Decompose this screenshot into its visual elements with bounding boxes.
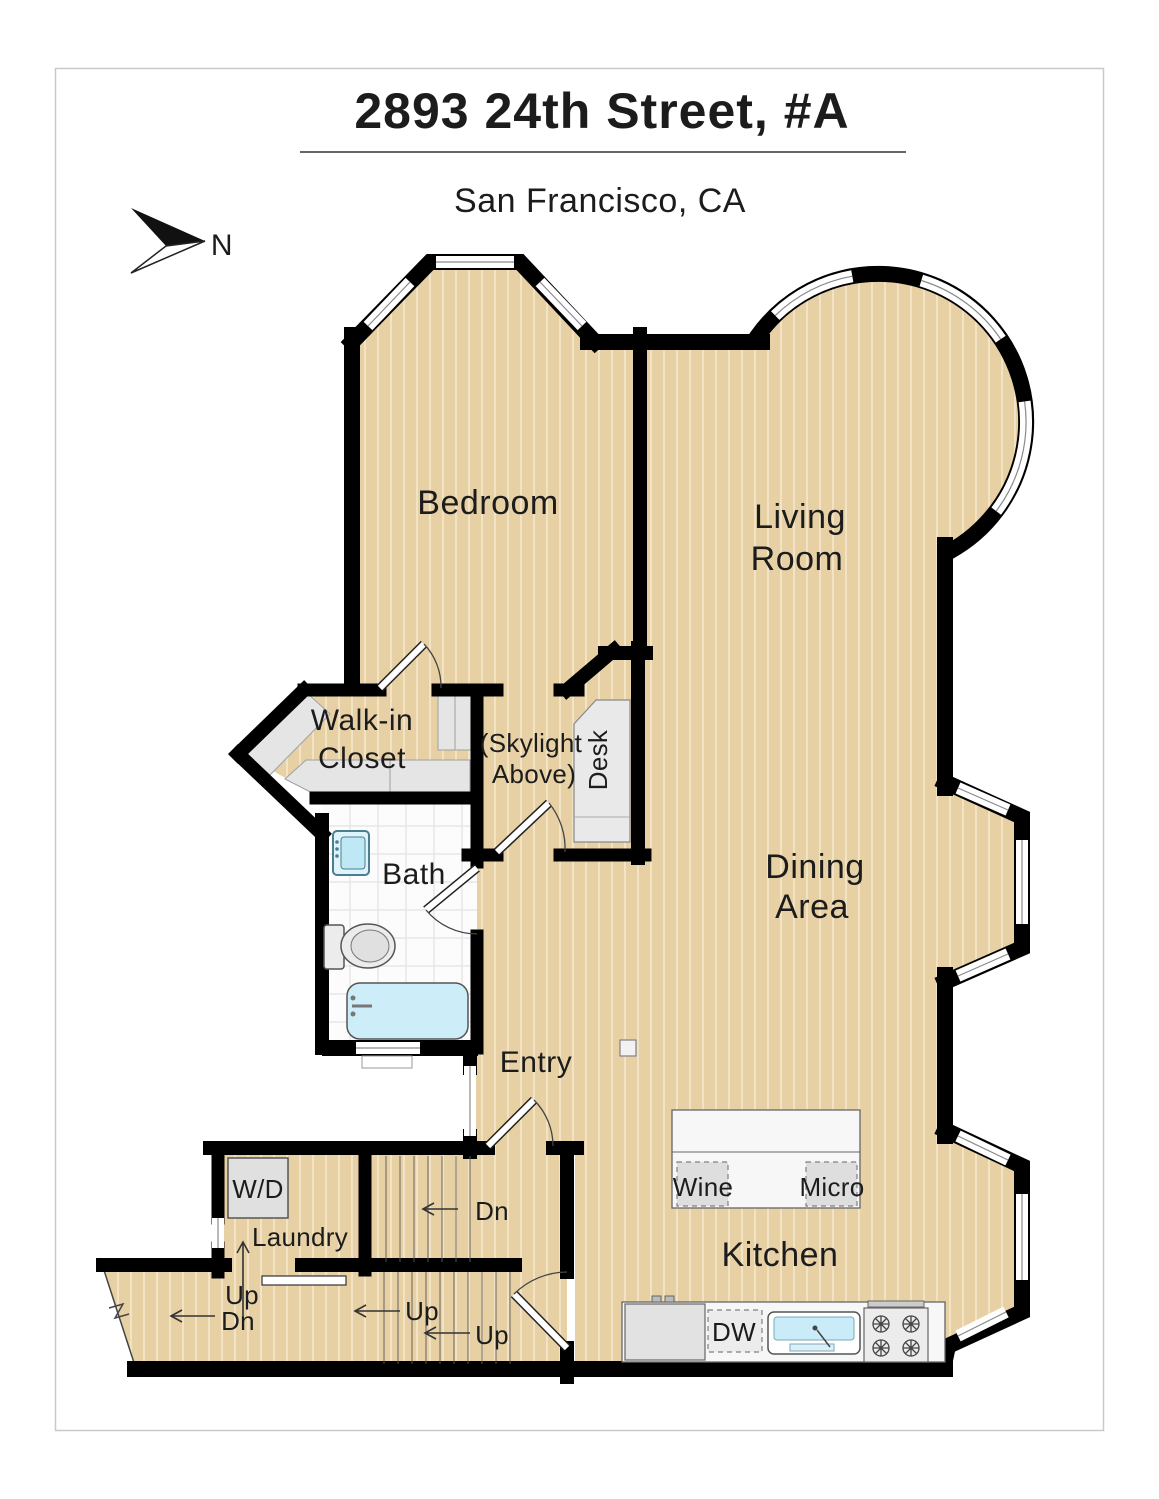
- page-title: 2893 24th Street, #A: [354, 83, 849, 139]
- micro-label: Micro: [799, 1172, 864, 1202]
- bedroom-floor: [352, 262, 646, 692]
- stair-handrail: [262, 1276, 346, 1285]
- skylight-label-2: Above): [492, 759, 576, 789]
- dining-area-label-2: Area: [775, 888, 849, 926]
- stove: [864, 1301, 928, 1362]
- living-dining-floor: [632, 342, 945, 862]
- north-arrow-outline: [131, 241, 205, 273]
- dishwasher-label: DW: [712, 1317, 756, 1347]
- kitchen-label: Kitchen: [722, 1236, 839, 1274]
- north-arrow-icon: N: [131, 208, 233, 273]
- north-label: N: [211, 229, 233, 262]
- bedroom-label: Bedroom: [417, 484, 558, 522]
- stairs-up-mid-label: Up: [405, 1296, 439, 1326]
- entry-label: Entry: [500, 1046, 573, 1079]
- skylight-label-1: (Skylight: [480, 728, 583, 758]
- bath-sink: [333, 831, 369, 875]
- closet-label-2: Closet: [318, 742, 406, 775]
- washer-dryer-label: W/D: [232, 1174, 283, 1204]
- toilet: [324, 924, 395, 969]
- header: 2893 24th Street, #A San Francisco, CA: [300, 83, 906, 220]
- stairs-dn-label: Dn: [475, 1196, 509, 1226]
- kitchen-sink: [768, 1312, 860, 1354]
- desk-label: Desk: [583, 729, 613, 790]
- bathtub: [347, 983, 468, 1039]
- wine-label: Wine: [673, 1172, 733, 1202]
- floor-plan-page: 2893 24th Street, #A San Francisco, CA N: [0, 0, 1159, 1499]
- living-room-label-2: Room: [751, 540, 844, 578]
- bath-label: Bath: [382, 858, 446, 891]
- structural-column: [620, 1040, 636, 1056]
- page-subtitle: San Francisco, CA: [454, 182, 746, 220]
- stairs-up-right-label: Up: [475, 1320, 509, 1350]
- refrigerator: [625, 1296, 705, 1360]
- kitchen-counter: [622, 1296, 945, 1362]
- laundry-label: Laundry: [252, 1222, 348, 1252]
- stairs-dn-left-label: Dn: [221, 1306, 255, 1336]
- floor-plan-canvas: 2893 24th Street, #A San Francisco, CA N: [0, 0, 1159, 1499]
- living-room-label-1: Living: [754, 498, 846, 536]
- north-arrow-solid: [131, 208, 205, 246]
- closet-label-1: Walk-in: [311, 704, 413, 737]
- dining-area-label-1: Dining: [765, 848, 864, 886]
